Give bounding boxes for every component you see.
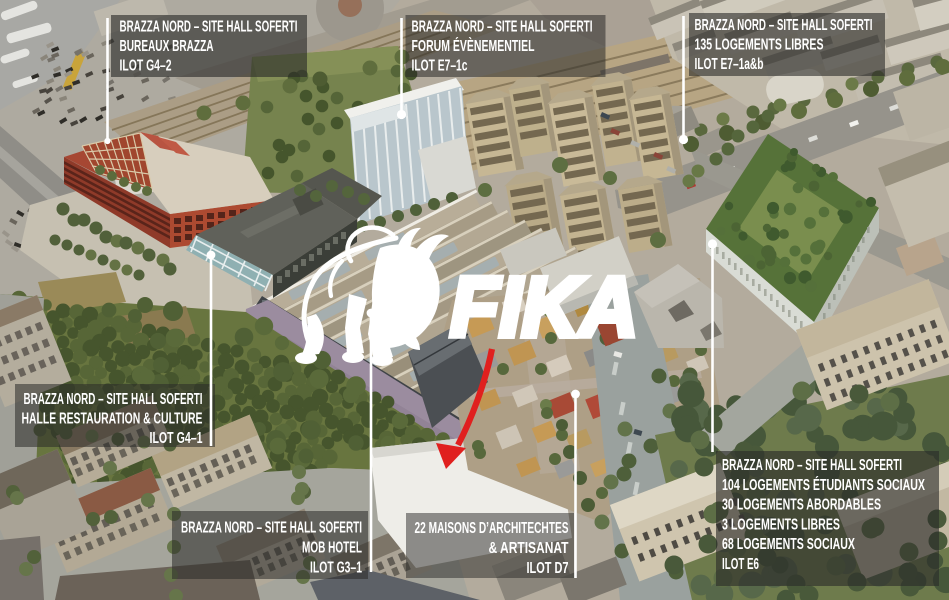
svg-text:ILOT E7–1a&b: ILOT E7–1a&b: [695, 56, 764, 73]
svg-text:68 LOGEMENTS SOCIAUX: 68 LOGEMENTS SOCIAUX: [722, 536, 855, 553]
svg-text:BRAZZA NORD – SITE HALL SOFERT: BRAZZA NORD – SITE HALL SOFERTI: [120, 19, 298, 36]
svg-text:FIKA: FIKA: [450, 260, 638, 354]
svg-text:& ARTISANAT: & ARTISANAT: [489, 540, 569, 557]
svg-text:BUREAUX BRAZZA: BUREAUX BRAZZA: [120, 38, 214, 55]
svg-text:MOB HOTEL: MOB HOTEL: [302, 540, 362, 557]
svg-text:3 LOGEMENTS LIBRES: 3 LOGEMENTS LIBRES: [722, 516, 840, 533]
svg-text:30 LOGEMENTS ABORDABLES: 30 LOGEMENTS ABORDABLES: [722, 497, 881, 514]
svg-text:ILOT G4–1: ILOT G4–1: [150, 430, 203, 447]
svg-text:BRAZZA NORD – SITE HALL SOFERT: BRAZZA NORD – SITE HALL SOFERTI: [695, 17, 873, 34]
svg-text:BRAZZA NORD – SITE HALL SOFERT: BRAZZA NORD – SITE HALL SOFERTI: [412, 19, 593, 36]
svg-text:ILOT E7–1c: ILOT E7–1c: [412, 58, 468, 75]
svg-text:BRAZZA NORD – SITE HALL SOFERT: BRAZZA NORD – SITE HALL SOFERTI: [24, 391, 203, 408]
svg-text:22 MAISONS D’ARCHITECHTES: 22 MAISONS D’ARCHITECHTES: [415, 520, 569, 537]
svg-text:BRAZZA NORD – SITE HALL SOFERT: BRAZZA NORD – SITE HALL SOFERTI: [181, 520, 362, 537]
svg-text:104 LOGEMENTS ÉTUDIANTS SOCIAU: 104 LOGEMENTS ÉTUDIANTS SOCIAUX: [722, 477, 925, 494]
svg-text:ILOT D7: ILOT D7: [527, 560, 569, 577]
svg-text:FORUM ÉVÈNEMENTIEL: FORUM ÉVÈNEMENTIEL: [412, 38, 535, 55]
svg-text:BRAZZA NORD – SITE HALL SOFERT: BRAZZA NORD – SITE HALL SOFERTI: [722, 457, 902, 474]
svg-text:HALLE RESTAURATION & CULTURE: HALLE RESTAURATION & CULTURE: [22, 411, 203, 428]
svg-text:135 LOGEMENTS LIBRES: 135 LOGEMENTS LIBRES: [695, 37, 824, 54]
svg-text:ILOT G4–2: ILOT G4–2: [120, 58, 172, 75]
svg-text:ILOT E6: ILOT E6: [722, 556, 759, 573]
svg-text:ILOT G3–1: ILOT G3–1: [310, 560, 362, 577]
